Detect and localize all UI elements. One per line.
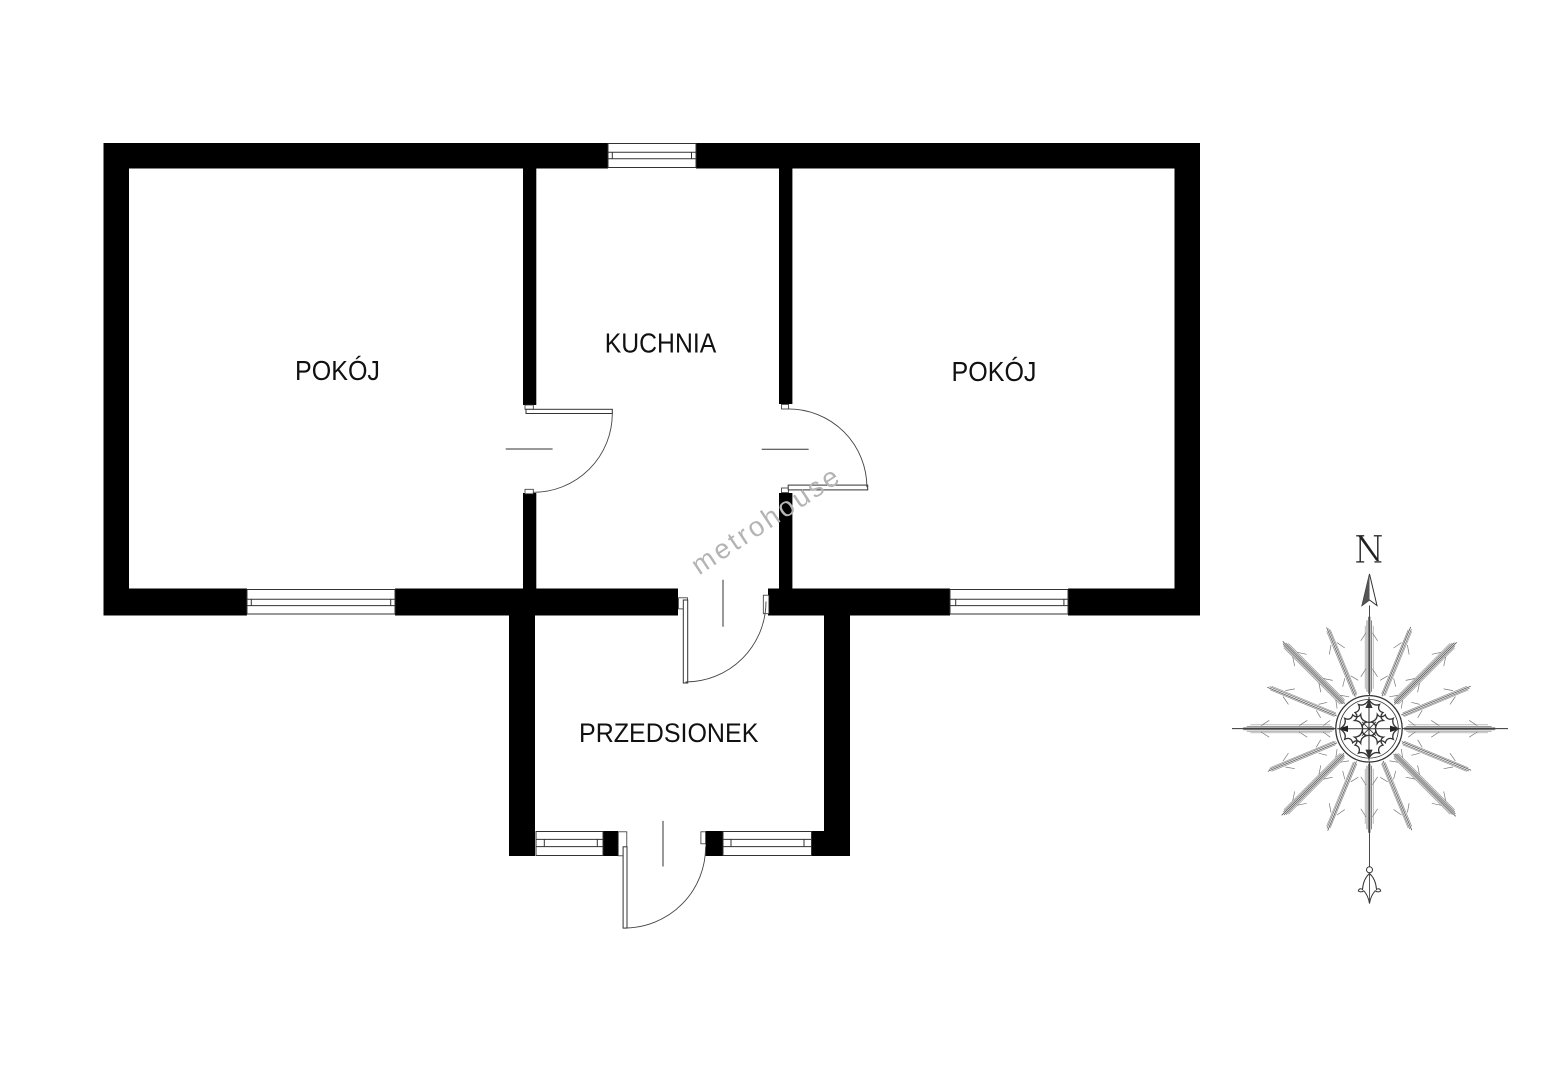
svg-text:KUCHNIA: KUCHNIA: [605, 327, 717, 359]
svg-text:POKÓJ: POKÓJ: [952, 356, 1037, 388]
svg-text:POKÓJ: POKÓJ: [295, 355, 380, 387]
svg-text:PRZEDSIONEK: PRZEDSIONEK: [579, 720, 758, 749]
